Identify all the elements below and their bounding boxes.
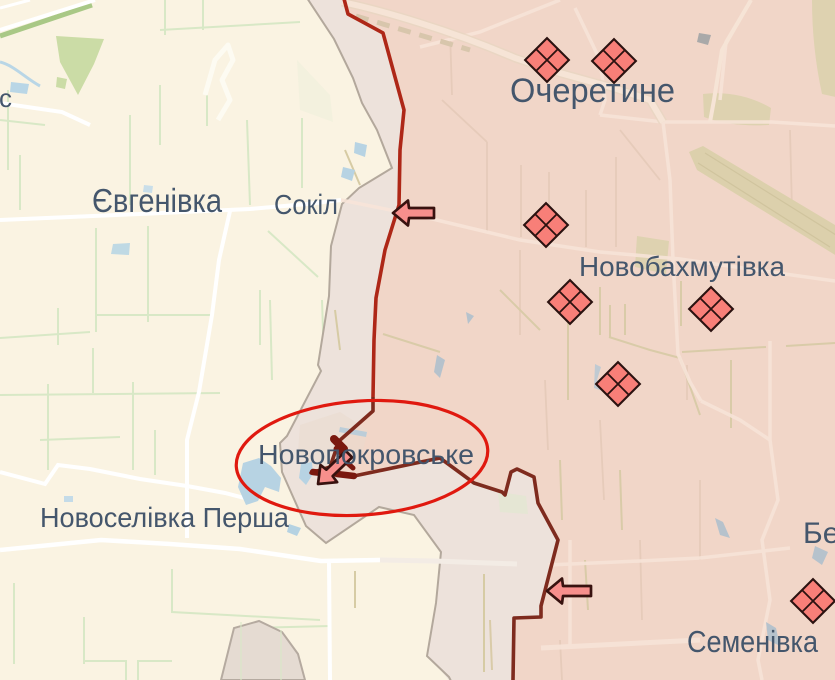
svg-text:Очеретине: Очеретине xyxy=(510,72,675,110)
svg-text:Новопокровське: Новопокровське xyxy=(258,439,474,470)
svg-text:Новоселівка Перша: Новоселівка Перша xyxy=(40,502,289,533)
svg-text:Євгенівка: Євгенівка xyxy=(92,182,223,219)
svg-text:Бе: Бе xyxy=(803,517,835,550)
svg-text:Новобахмутівка: Новобахмутівка xyxy=(579,251,786,282)
svg-text:Семенівка: Семенівка xyxy=(687,624,819,659)
svg-text:с: с xyxy=(0,83,12,113)
svg-text:Сокіл: Сокіл xyxy=(274,189,338,220)
